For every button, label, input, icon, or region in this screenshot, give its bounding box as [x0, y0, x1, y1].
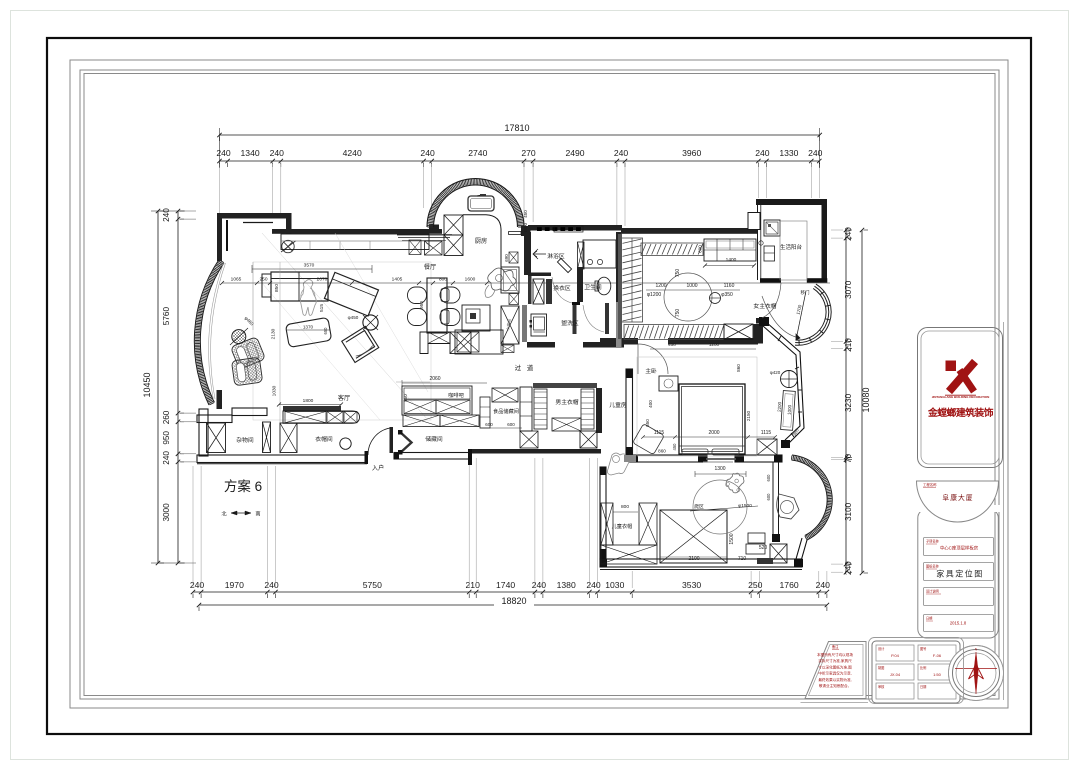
svg-text:淋浴区: 淋浴区	[547, 252, 565, 260]
svg-text:18820: 18820	[501, 596, 526, 606]
svg-text:600: 600	[766, 493, 771, 501]
svg-text:寸以深化图纸为准,图: 寸以深化图纸为准,图	[818, 664, 852, 669]
svg-text:杂物间: 杂物间	[236, 436, 254, 444]
svg-text:1340: 1340	[241, 148, 260, 158]
svg-text:2200: 2200	[777, 401, 783, 412]
svg-text:450: 450	[523, 210, 528, 218]
svg-text:实际尺寸为准,家具尺: 实际尺寸为准,家具尺	[818, 658, 852, 663]
svg-text:日期: 日期	[920, 684, 926, 689]
svg-text:1065: 1065	[231, 277, 242, 283]
svg-text:工程名称: 工程名称	[923, 482, 937, 487]
svg-text:φ350: φ350	[721, 292, 733, 298]
svg-text:F-06: F-06	[933, 653, 942, 658]
svg-text:450: 450	[668, 342, 676, 347]
svg-text:金螳螂建筑装饰: 金螳螂建筑装饰	[927, 406, 994, 419]
svg-text:240: 240	[216, 148, 231, 158]
svg-text:260: 260	[162, 410, 171, 424]
svg-text:2070: 2070	[317, 277, 328, 283]
svg-text:备注: 备注	[832, 644, 839, 649]
svg-text:1405: 1405	[392, 277, 403, 283]
svg-text:710: 710	[738, 556, 747, 562]
svg-text:750: 750	[675, 269, 681, 278]
svg-text:240: 240	[586, 580, 601, 590]
svg-text:600: 600	[766, 474, 771, 482]
svg-text:600: 600	[698, 245, 703, 253]
svg-text:2130: 2130	[271, 328, 277, 339]
svg-text:10080: 10080	[861, 387, 871, 412]
svg-text:阜康大厦: 阜康大厦	[942, 493, 973, 502]
svg-text:240: 240	[532, 580, 547, 590]
svg-text:950: 950	[162, 431, 171, 445]
svg-text:比例: 比例	[920, 665, 926, 670]
svg-text:南: 南	[255, 510, 260, 518]
svg-text:1200: 1200	[709, 342, 720, 347]
svg-text:图号: 图号	[920, 646, 926, 651]
svg-text:240: 240	[162, 208, 171, 222]
svg-text:1800: 1800	[303, 398, 314, 404]
svg-text:250: 250	[259, 277, 267, 283]
svg-text:2150: 2150	[746, 410, 751, 421]
svg-text:4240: 4240	[343, 148, 362, 158]
svg-text:儿童房: 儿童房	[609, 401, 627, 409]
svg-text:P.04: P.04	[891, 653, 899, 658]
svg-text:φ1500: φ1500	[738, 503, 752, 509]
svg-text:3100: 3100	[844, 502, 853, 521]
svg-text:过 道: 过 道	[515, 363, 536, 372]
svg-text:690: 690	[504, 254, 509, 262]
svg-text:1200: 1200	[655, 283, 666, 289]
svg-text:储藏间: 储藏间	[425, 435, 443, 443]
svg-text:设计: 设计	[878, 646, 885, 651]
svg-text:餐厅: 餐厅	[424, 263, 436, 271]
svg-text:1970: 1970	[225, 580, 244, 590]
svg-text:生活阳台: 生活阳台	[780, 243, 803, 251]
svg-text:φ1200: φ1200	[647, 292, 662, 298]
svg-text:φ450: φ450	[348, 315, 359, 320]
svg-text:450: 450	[672, 443, 677, 451]
svg-text:设计说明: 设计说明	[926, 589, 939, 594]
svg-text:1330: 1330	[779, 148, 798, 158]
svg-text:1900: 1900	[523, 222, 528, 233]
svg-text:北: 北	[221, 510, 227, 518]
svg-text:2060: 2060	[429, 376, 440, 382]
svg-text:860: 860	[658, 449, 666, 454]
svg-text:2740: 2740	[468, 148, 487, 158]
svg-text:5760: 5760	[162, 307, 171, 326]
svg-text:240: 240	[808, 148, 823, 158]
svg-text:240: 240	[420, 148, 435, 158]
svg-text:1300: 1300	[714, 466, 725, 472]
svg-text:240: 240	[190, 580, 205, 590]
svg-text:650: 650	[645, 419, 650, 427]
svg-text:850: 850	[403, 394, 408, 402]
svg-text:中所示家具仅为示意,: 中所示家具仅为示意,	[818, 671, 851, 676]
svg-text:5750: 5750	[363, 580, 382, 590]
svg-text:儿童衣帽: 儿童衣帽	[612, 522, 633, 530]
svg-text:240: 240	[614, 148, 629, 158]
svg-text:φ420: φ420	[770, 370, 781, 375]
svg-text:800: 800	[439, 277, 447, 283]
svg-text:食品储藏间: 食品储藏间	[493, 407, 519, 415]
svg-text:650: 650	[323, 327, 328, 335]
svg-text:中心C座顶层样板房: 中心C座顶层样板房	[940, 545, 979, 552]
svg-text:2015.1.8: 2015.1.8	[950, 621, 967, 626]
svg-text:审核: 审核	[878, 684, 885, 689]
svg-text:10450: 10450	[142, 372, 152, 397]
svg-text:1:50: 1:50	[933, 672, 942, 677]
svg-text:600: 600	[485, 422, 493, 427]
svg-text:1370: 1370	[303, 325, 314, 330]
svg-text:240: 240	[755, 148, 770, 158]
svg-text:图纸名称: 图纸名称	[926, 564, 940, 569]
svg-text:240: 240	[162, 451, 171, 465]
svg-text:1115: 1115	[761, 430, 772, 436]
svg-text:1500: 1500	[729, 533, 735, 544]
svg-text:敬请业主知悉配合。: 敬请业主知悉配合。	[819, 683, 851, 688]
svg-text:1000: 1000	[686, 283, 697, 289]
svg-text:1600: 1600	[465, 277, 476, 283]
svg-text:3570: 3570	[304, 263, 315, 269]
svg-text:爬区: 爬区	[694, 503, 704, 510]
svg-text:520: 520	[759, 545, 768, 551]
svg-text:1740: 1740	[496, 580, 515, 590]
svg-text:860: 860	[736, 364, 741, 372]
svg-text:2490: 2490	[565, 148, 584, 158]
svg-text:卫生间: 卫生间	[584, 283, 602, 291]
svg-text:子项名称: 子项名称	[926, 539, 940, 544]
svg-text:850: 850	[274, 284, 280, 292]
svg-text:衣帽间: 衣帽间	[315, 435, 333, 443]
svg-text:750: 750	[675, 309, 681, 318]
svg-text:250: 250	[748, 580, 763, 590]
svg-text:17810: 17810	[504, 123, 529, 133]
svg-text:240: 240	[270, 148, 285, 158]
svg-text:最终效果以实物为准,: 最终效果以实物为准,	[818, 677, 851, 682]
svg-text:1030: 1030	[272, 385, 278, 396]
svg-text:厨房: 厨房	[475, 237, 487, 245]
svg-text:主卧: 主卧	[645, 367, 657, 375]
svg-text:800: 800	[621, 504, 629, 510]
svg-text:家具定位图: 家具定位图	[936, 569, 984, 579]
svg-text:600: 600	[507, 422, 515, 427]
svg-text:男主衣帽: 男主衣帽	[555, 398, 578, 406]
svg-text:1000: 1000	[787, 404, 793, 415]
svg-text:1380: 1380	[557, 580, 576, 590]
svg-text:515: 515	[319, 304, 325, 312]
svg-text:日期: 日期	[926, 616, 932, 621]
svg-text:本图所有尺寸均以现场: 本图所有尺寸均以现场	[817, 652, 853, 657]
svg-text:1760: 1760	[780, 580, 799, 590]
svg-text:950: 950	[419, 301, 424, 309]
svg-text:1030: 1030	[605, 580, 624, 590]
svg-text:盥洗区: 盥洗区	[561, 319, 579, 327]
svg-text:1400: 1400	[726, 257, 737, 263]
svg-text:制图: 制图	[878, 665, 884, 670]
svg-text:3230: 3230	[844, 393, 853, 412]
svg-text:240: 240	[264, 580, 279, 590]
svg-text:入户: 入户	[372, 464, 384, 472]
svg-text:3000: 3000	[162, 503, 171, 522]
svg-text:1115: 1115	[654, 430, 665, 436]
svg-text:1160: 1160	[724, 283, 735, 289]
svg-text:3530: 3530	[682, 580, 701, 590]
svg-text:210: 210	[466, 580, 481, 590]
svg-text:咖啡吧: 咖啡吧	[448, 391, 464, 399]
svg-text:400: 400	[648, 400, 653, 408]
svg-text:3070: 3070	[844, 280, 853, 299]
svg-text:JX.04: JX.04	[890, 672, 901, 677]
svg-text:270: 270	[521, 148, 536, 158]
svg-text:2000: 2000	[708, 430, 719, 436]
svg-text:方案 6: 方案 6	[224, 478, 262, 494]
svg-text:3960: 3960	[682, 148, 701, 158]
svg-text:240: 240	[816, 580, 831, 590]
svg-text:客厅: 客厅	[338, 394, 350, 402]
